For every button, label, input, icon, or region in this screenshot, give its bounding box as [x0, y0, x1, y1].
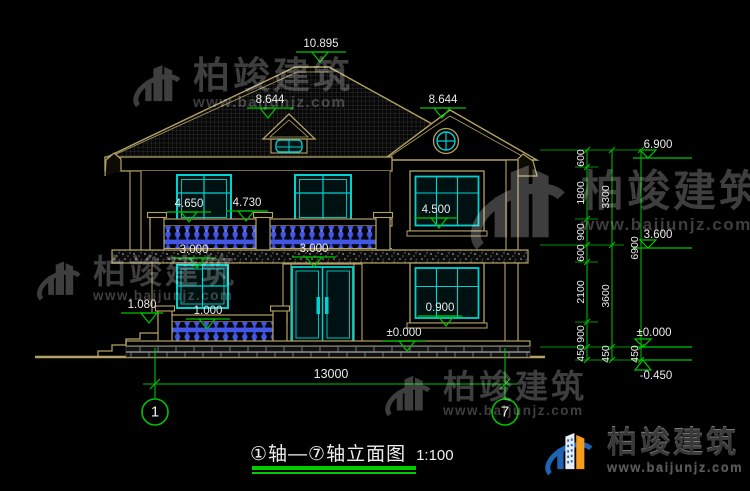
baijun-logo-color-icon	[540, 424, 598, 480]
baijun-logo-icon	[130, 55, 184, 113]
elev-label-right-zero: ±0.000	[636, 327, 671, 339]
watermark-brand: 柏竣建筑	[193, 57, 353, 95]
dim-label-450a: 450	[575, 344, 587, 362]
window-balcony-mid	[295, 175, 351, 222]
title-underline-thick	[252, 466, 416, 470]
entry-door	[283, 264, 362, 342]
elev-label-3000-mid: 3.000	[300, 243, 329, 255]
elev-label-4500: 4.500	[422, 204, 451, 216]
elev-label-right-6900: 6.900	[644, 139, 673, 151]
elev-label-1000: 1.000	[194, 305, 223, 317]
title-underline-thin	[252, 472, 416, 474]
watermark-mid-left: 柏竣建筑 www.baijunjz.com	[34, 252, 237, 306]
dim-label-2100: 2100	[575, 280, 587, 303]
title-text: ①轴—⑦轴立面图	[250, 439, 406, 466]
elev-label-1080: 1.080	[128, 299, 157, 311]
dim-label-900b: 900	[575, 325, 587, 343]
watermark-bottom-right: 柏竣建筑 www.baijunjz.com	[540, 424, 743, 480]
elev-label-right-3600: 3.600	[644, 229, 673, 241]
elev-label-zero-mid: ±0.000	[386, 327, 421, 339]
elev-label-ridge-right: 8.644	[429, 94, 458, 106]
door-handle	[325, 297, 329, 314]
elev-label-ridge-left: 8.644	[256, 94, 285, 106]
axis-number-1: 1	[151, 404, 159, 421]
baijun-logo-icon	[382, 366, 434, 422]
elev-label-4730: 4.730	[233, 197, 262, 209]
elev-label-right-grade: -0.450	[640, 370, 673, 382]
cad-elevation-screenshot: 10.895 8.644 8.644 4.650 4.730 4.500 3.0…	[0, 0, 750, 491]
dim-label-600a: 600	[575, 149, 587, 167]
dim-label-3300: 3300	[600, 185, 612, 208]
elev-label-4650: 4.650	[175, 198, 204, 210]
dim-label-450c: 450	[629, 345, 641, 363]
dim-label-900a: 900	[575, 223, 587, 241]
elev-label-0900: 0.900	[426, 302, 455, 314]
dim-label-600b: 600	[575, 244, 587, 262]
watermark-url: www.baijunjz.com	[443, 403, 587, 418]
window-1f-right	[407, 263, 487, 328]
elev-label-peak: 10.895	[303, 38, 338, 50]
door-handle	[317, 297, 321, 314]
watermark-brand: 柏竣建筑	[443, 370, 587, 404]
dim-label-450b: 450	[600, 345, 612, 363]
marker-right-zero	[633, 339, 692, 347]
watermark-url: www.baijunjz.com	[607, 460, 743, 475]
baijun-logo-icon	[464, 146, 572, 260]
elev-label-3000-left: 3.000	[180, 244, 209, 256]
dim-label-6900: 6900	[629, 236, 641, 259]
title-scale: 1:100	[416, 447, 454, 464]
watermark-top-left: 柏竣建筑 www.baijunjz.com	[130, 55, 353, 113]
watermark-brand: 柏竣建筑	[93, 255, 237, 289]
marker-right-minus450	[633, 360, 692, 370]
dim-label-13000: 13000	[314, 367, 349, 381]
watermark-bottom-mid: 柏竣建筑 www.baijunjz.com	[382, 366, 587, 422]
watermark-url: www.baijunjz.com	[93, 288, 237, 303]
dim-label-3600: 3600	[600, 284, 612, 307]
axis-number-7: 7	[501, 404, 509, 421]
watermark-brand: 柏竣建筑	[607, 429, 743, 460]
drawing-title: ①轴—⑦轴立面图 1:100	[250, 439, 454, 466]
baijun-logo-icon	[34, 252, 84, 306]
round-vent	[434, 129, 459, 154]
base-wall	[126, 341, 530, 357]
dim-label-1800: 1800	[575, 181, 587, 204]
